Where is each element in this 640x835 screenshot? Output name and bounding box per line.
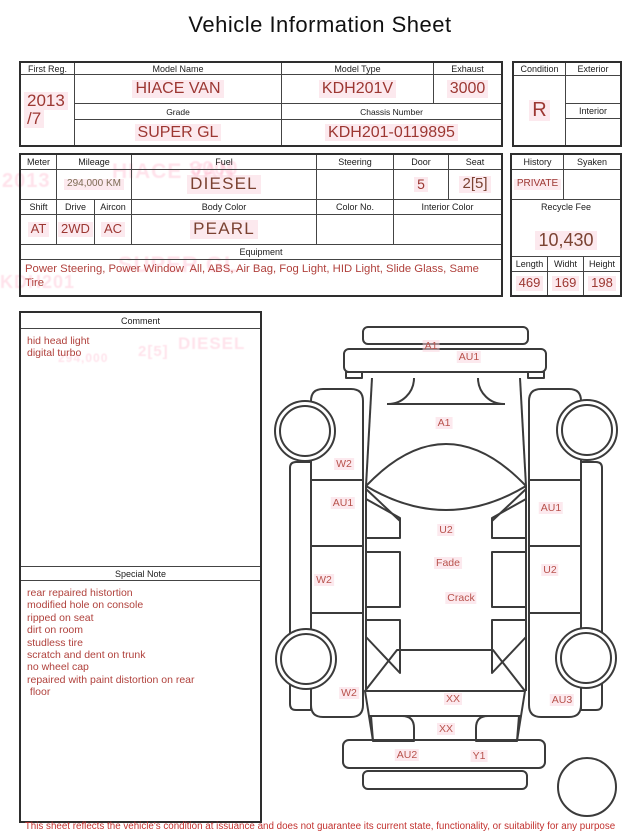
chassis-number-value: KDH201-0119895 bbox=[282, 120, 501, 145]
wheel-rear-right bbox=[556, 628, 616, 688]
meter-value bbox=[21, 170, 57, 200]
right-front-door bbox=[529, 480, 581, 546]
fuel-value: DIESEL bbox=[132, 170, 317, 200]
history-header: History bbox=[512, 155, 564, 170]
window-rear-left bbox=[366, 620, 400, 673]
damage-mark: A1 bbox=[423, 340, 440, 352]
syaken-value bbox=[564, 170, 620, 200]
height-value: 198 bbox=[584, 272, 620, 295]
damage-mark: U2 bbox=[437, 524, 454, 536]
wiper-arc-right bbox=[478, 378, 505, 404]
special-note-content: rear repaired histortionmodified hole on… bbox=[21, 581, 260, 821]
exhaust-header: Exhaust bbox=[434, 63, 501, 75]
window-mid-left bbox=[366, 552, 400, 607]
rear-bumper bbox=[343, 740, 545, 768]
interior-color-header: Interior Color bbox=[394, 200, 501, 215]
drive-value: 2WD bbox=[57, 215, 95, 245]
shift-value: AT bbox=[21, 215, 57, 245]
recycle-fee-cell: Recycle Fee 10,430 bbox=[512, 200, 620, 257]
damage-mark: W2 bbox=[334, 458, 354, 470]
exhaust-value: 3000 bbox=[434, 75, 501, 104]
left-rear-panel bbox=[311, 613, 363, 717]
special-note-line: rear repaired histortion bbox=[27, 587, 254, 599]
left-front-fender bbox=[311, 389, 363, 480]
rear-pillar-right bbox=[476, 716, 519, 741]
recycle-fee-value: 10,430 bbox=[535, 231, 596, 250]
special-note-line: ripped on seat bbox=[27, 612, 254, 624]
history-value: PRIVATE bbox=[512, 170, 564, 200]
damage-mark: AU1 bbox=[539, 502, 563, 514]
special-note-line: scratch and dent on trunk bbox=[27, 649, 254, 661]
mileage-header: Mileage bbox=[57, 155, 132, 170]
right-rear-panel bbox=[529, 613, 581, 717]
front-bumper bbox=[344, 349, 546, 372]
condition-value: R bbox=[514, 76, 566, 145]
damage-mark: Crack bbox=[445, 592, 476, 604]
chassis-number-header: Chassis Number bbox=[282, 104, 501, 120]
body-color-header: Body Color bbox=[132, 200, 317, 215]
front-bumper-tab-left bbox=[346, 372, 362, 378]
window-rear-right bbox=[492, 620, 526, 673]
width-header: Widht bbox=[548, 257, 584, 272]
condition-table: Condition Exterior R Interior bbox=[512, 61, 622, 147]
comment-content: hid head lightdigital turbo bbox=[21, 329, 260, 566]
meter-header: Meter bbox=[21, 155, 57, 170]
special-note-line: modified hole on console bbox=[27, 599, 254, 611]
vehicle-spec-table: Meter Mileage Fuel Steering Door Seat 29… bbox=[19, 153, 503, 297]
damage-mark: Y1 bbox=[471, 750, 488, 762]
damage-mark: A1 bbox=[436, 417, 453, 429]
height-header: Height bbox=[584, 257, 620, 272]
wheel-front-right bbox=[557, 400, 617, 460]
right-slide-door bbox=[529, 546, 581, 613]
steering-header: Steering bbox=[317, 155, 394, 170]
wheel-front-left bbox=[275, 401, 335, 461]
equipment-header: Equipment bbox=[21, 245, 501, 260]
damage-mark: Fade bbox=[434, 557, 462, 569]
pillar-line-right bbox=[492, 489, 526, 521]
history-fee-table: History Syaken PRIVATE Recycle Fee 10,43… bbox=[510, 153, 622, 297]
exterior-header: Exterior bbox=[566, 63, 620, 76]
right-sill bbox=[581, 462, 602, 710]
grade-header: Grade bbox=[75, 104, 282, 120]
pillar-line-left bbox=[366, 489, 400, 521]
model-type-header: Model Type bbox=[282, 63, 434, 75]
interior-value bbox=[566, 119, 620, 145]
special-note-header: Special Note bbox=[21, 566, 260, 581]
special-note-line: floor bbox=[27, 686, 254, 698]
shift-header: Shift bbox=[21, 200, 57, 215]
window-mid-right bbox=[492, 552, 526, 607]
front-bumper-tab-right bbox=[528, 372, 544, 378]
mileage-value: 294,000 KM bbox=[57, 170, 132, 200]
vehicle-identity-table: First Reg. Model Name Model Type Exhaust… bbox=[19, 61, 503, 147]
first-reg-header: First Reg. bbox=[21, 63, 75, 75]
right-front-fender bbox=[529, 389, 581, 480]
length-header: Length bbox=[512, 257, 548, 272]
model-type-value: KDH201V bbox=[282, 75, 434, 104]
wheel-rear-left bbox=[276, 629, 336, 689]
width-value: 169 bbox=[548, 272, 584, 295]
special-note-line: studless tire bbox=[27, 637, 254, 649]
body-color-value: PEARL bbox=[132, 215, 317, 245]
damage-mark: U2 bbox=[541, 564, 558, 576]
length-value: 469 bbox=[512, 272, 548, 295]
interior-color-value bbox=[394, 215, 501, 245]
seat-value: 2[5] bbox=[449, 170, 501, 200]
damage-mark: W2 bbox=[339, 687, 359, 699]
special-note-line: repaired with paint distortion on rear bbox=[27, 674, 254, 686]
left-sill bbox=[290, 462, 311, 710]
spare-tire bbox=[558, 758, 616, 816]
fuel-header: Fuel bbox=[132, 155, 317, 170]
equipment-value: Power Steering, Power Window All, ABS, A… bbox=[21, 260, 501, 295]
disclaimer-text: This sheet reflects the vehicle's condit… bbox=[0, 821, 640, 832]
color-no-value bbox=[317, 215, 394, 245]
aircon-value: AC bbox=[95, 215, 132, 245]
left-front-door bbox=[311, 480, 363, 546]
rear-pillar-left bbox=[371, 716, 414, 741]
window-front-right bbox=[492, 499, 526, 538]
rear-hatch-side-left bbox=[369, 716, 373, 741]
hood-side-right bbox=[520, 378, 526, 486]
rear-roof-trapezoid bbox=[365, 650, 525, 691]
drive-header: Drive bbox=[57, 200, 95, 215]
damage-mark: AU3 bbox=[550, 694, 574, 706]
page-title: Vehicle Information Sheet bbox=[0, 12, 640, 38]
comment-line: hid head light bbox=[27, 335, 254, 347]
seat-header: Seat bbox=[449, 155, 501, 170]
comment-line: digital turbo bbox=[27, 347, 254, 359]
door-header: Door bbox=[394, 155, 449, 170]
model-name-value: HIACE VAN bbox=[75, 75, 282, 104]
damage-mark: XX bbox=[444, 693, 462, 705]
grade-value: SUPER GL bbox=[75, 120, 282, 145]
model-name-header: Model Name bbox=[75, 63, 282, 75]
condition-header: Condition bbox=[514, 63, 566, 76]
damage-mark: XX bbox=[437, 723, 455, 735]
syaken-header: Syaken bbox=[564, 155, 620, 170]
damage-mark: AU1 bbox=[457, 351, 481, 363]
damage-mark: AU1 bbox=[331, 497, 355, 509]
left-slide-door bbox=[311, 546, 363, 613]
rear-hatch-side-right bbox=[517, 716, 521, 741]
exterior-value bbox=[566, 76, 620, 104]
window-front-left bbox=[366, 499, 400, 538]
wiper-arc-left bbox=[387, 378, 414, 404]
damage-mark: W2 bbox=[314, 574, 334, 586]
aircon-header: Aircon bbox=[95, 200, 132, 215]
rear-lower-bar bbox=[363, 771, 527, 789]
color-no-header: Color No. bbox=[317, 200, 394, 215]
interior-header: Interior bbox=[566, 104, 620, 119]
hood-side-left bbox=[366, 378, 372, 486]
first-reg-value: 2013 /7 bbox=[21, 75, 75, 145]
roof-lens bbox=[366, 444, 526, 510]
recycle-fee-header: Recycle Fee bbox=[541, 202, 591, 212]
damage-mark: AU2 bbox=[395, 749, 419, 761]
comment-box: Comment hid head lightdigital turbo Spec… bbox=[19, 311, 262, 823]
rear-hatch-band bbox=[365, 691, 525, 716]
door-value: 5 bbox=[394, 170, 449, 200]
special-note-line: dirt on room bbox=[27, 624, 254, 636]
comment-header: Comment bbox=[21, 313, 260, 329]
front-grille-bar bbox=[363, 327, 528, 344]
steering-value bbox=[317, 170, 394, 200]
special-note-line: no wheel cap bbox=[27, 661, 254, 673]
